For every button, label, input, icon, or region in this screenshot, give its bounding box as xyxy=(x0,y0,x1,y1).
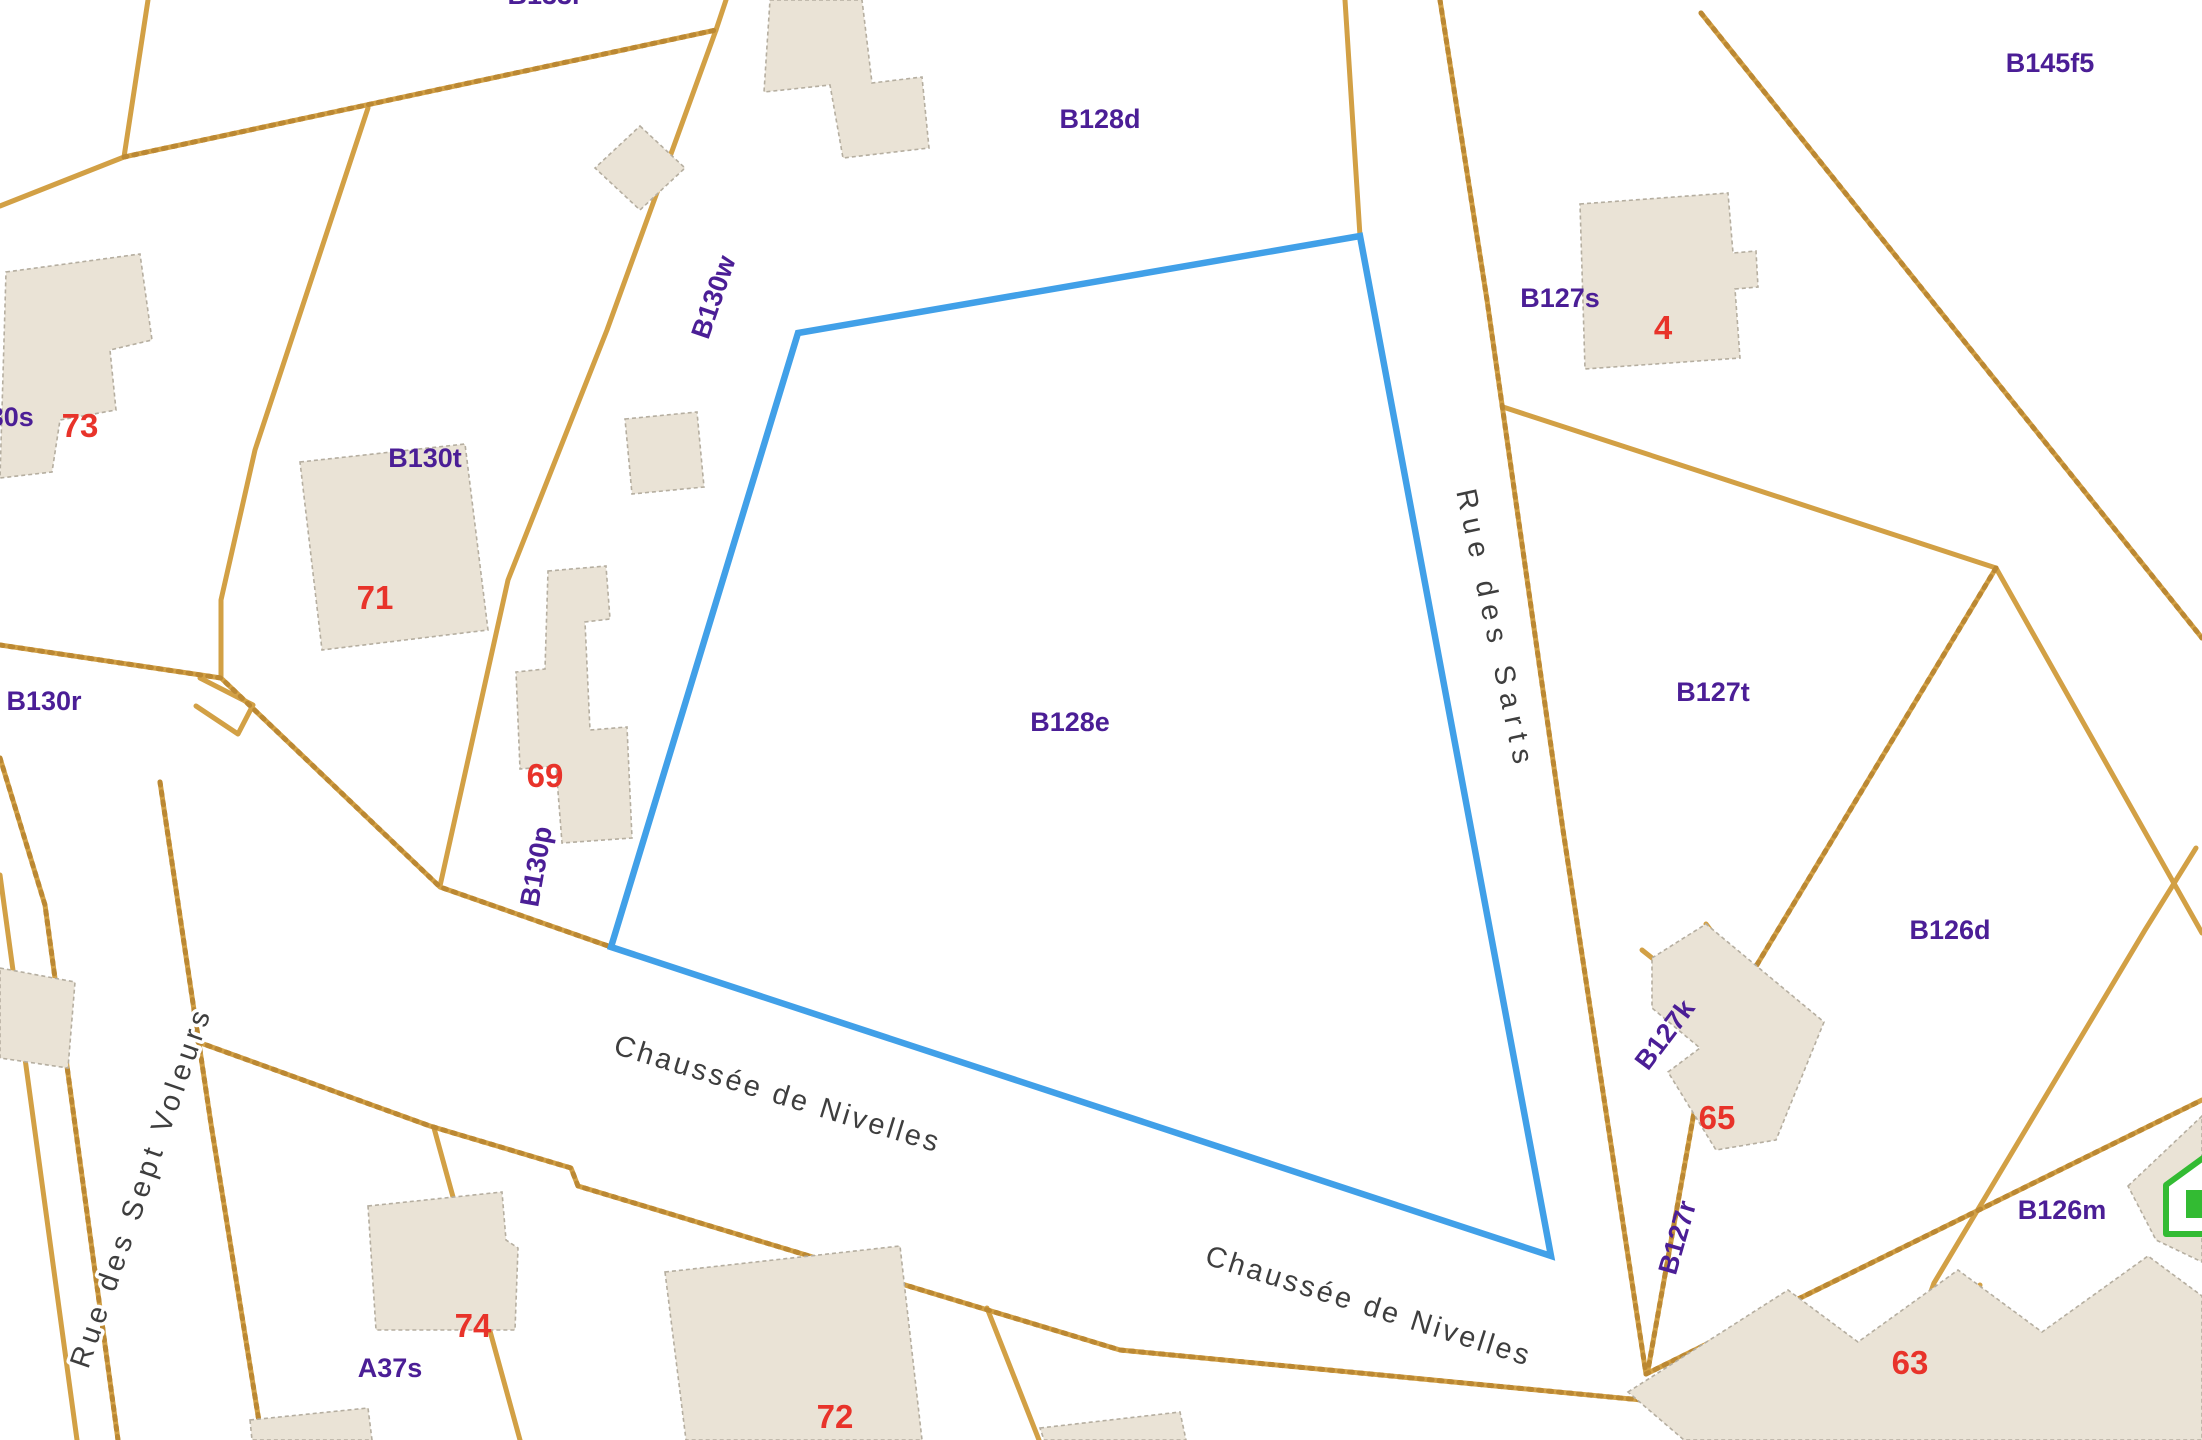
house-number-4: 4 xyxy=(1654,309,1673,346)
parcel-label-B145f5: B145f5 xyxy=(2006,48,2095,78)
parcel-label-B127t: B127t xyxy=(1676,677,1750,707)
parcel-label-B133r: B133r xyxy=(507,0,583,10)
parcel-label-B126d: B126d xyxy=(1909,915,1990,945)
building-72 xyxy=(665,1246,922,1440)
house-number-65: 65 xyxy=(1699,1099,1736,1136)
parcel-label-B128d: B128d xyxy=(1059,104,1140,134)
house-number-63: 63 xyxy=(1892,1344,1929,1381)
parcel-label-B130t: B130t xyxy=(388,443,462,473)
house-number-74: 74 xyxy=(455,1307,492,1344)
parcel-label-B126m: B126m xyxy=(2018,1195,2107,1225)
house-number-73: 73 xyxy=(62,407,99,444)
house-number-71: 71 xyxy=(357,579,394,616)
building-small xyxy=(625,412,704,494)
parcel-label-A37s: A37s xyxy=(358,1353,423,1383)
parcel-label-B128e: B128e xyxy=(1030,707,1110,737)
parcel-label-B127s: B127s xyxy=(1520,283,1600,313)
map-canvas[interactable]: B133r B128d B145f5 B130w B130s B130t B13… xyxy=(0,0,2202,1440)
house-number-72: 72 xyxy=(817,1398,854,1435)
cadastral-map[interactable]: B133r B128d B145f5 B130w B130s B130t B13… xyxy=(0,0,2202,1440)
parcel-label-B130r: B130r xyxy=(6,686,82,716)
house-number-69: 69 xyxy=(527,757,564,794)
building-74 xyxy=(368,1192,518,1330)
building-small xyxy=(0,968,75,1068)
parcel-label-B130s: B130s xyxy=(0,402,34,432)
building-71 xyxy=(300,444,488,650)
